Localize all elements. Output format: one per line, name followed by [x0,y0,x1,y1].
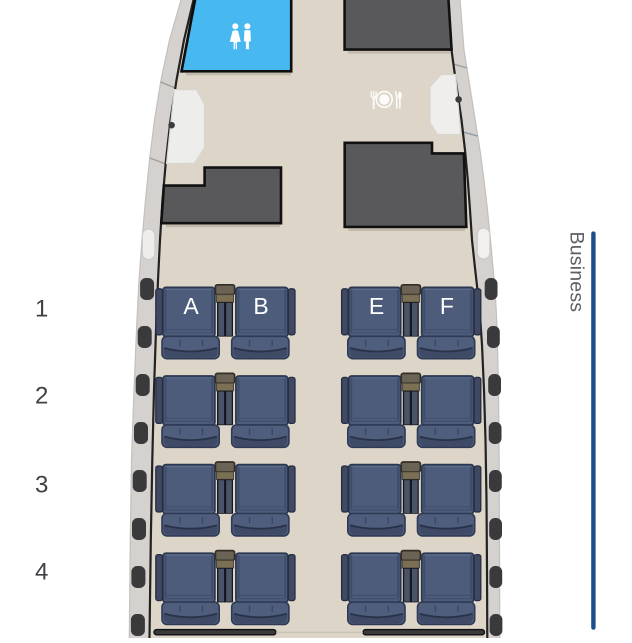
svg-text:B: B [253,293,268,319]
svg-text:1: 1 [35,296,48,323]
svg-text:A: A [183,293,199,319]
svg-text:2: 2 [35,383,48,410]
svg-text:Business: Business [566,232,588,313]
svg-text:F: F [440,293,454,319]
svg-text:4: 4 [35,559,48,586]
svg-text:3: 3 [35,472,48,499]
svg-text:E: E [369,293,384,319]
